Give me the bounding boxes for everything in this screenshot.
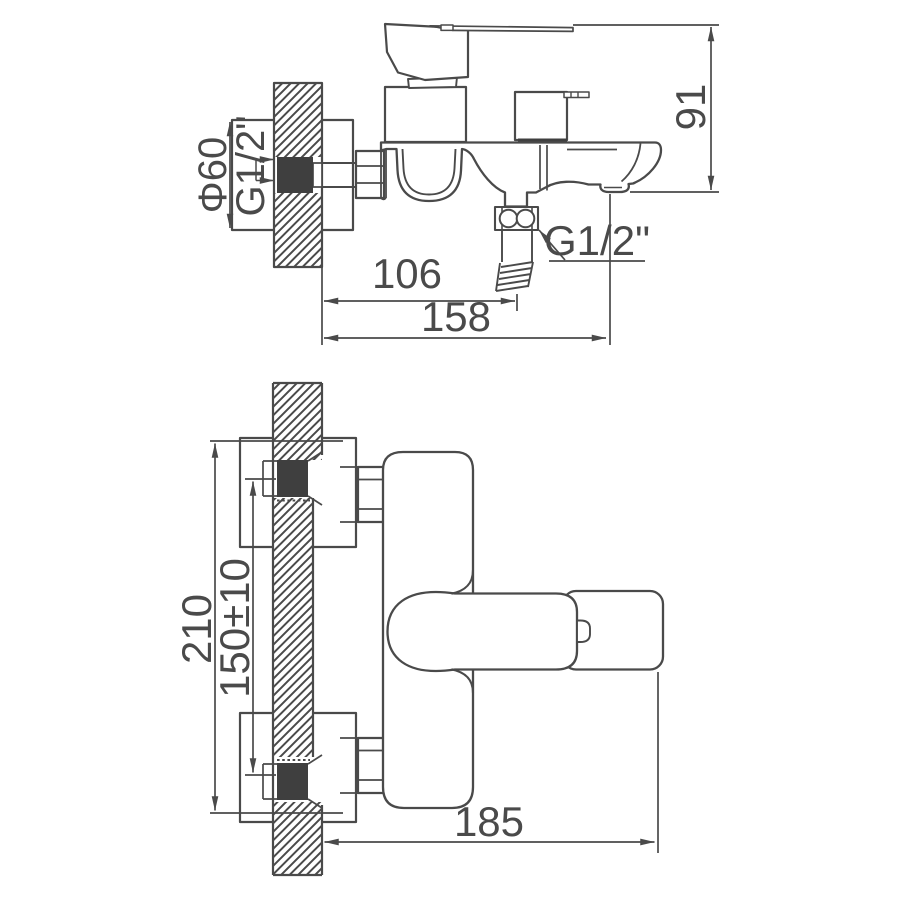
cartridge-housing <box>385 87 466 142</box>
dim-g12-inlet-label: G1/2" <box>229 116 273 217</box>
hex-nut-front-top <box>358 467 384 522</box>
technical-drawing-canvas: Φ60 G1/2" 91 106 158 G1/2" <box>0 0 900 900</box>
handle-grip-side <box>385 24 468 80</box>
side-view: Φ60 G1/2" 91 106 158 G1/2" <box>191 24 719 345</box>
inlet-fitting <box>277 157 313 193</box>
eccentric-fitting-bottom <box>277 763 308 800</box>
eccentric-fitting-top <box>277 460 308 497</box>
lever-notch <box>441 25 453 30</box>
wall-hatch-upper <box>274 83 322 157</box>
diverter-flag <box>564 92 589 98</box>
handle-lever-front <box>388 592 578 671</box>
hex-nut-side <box>356 151 384 198</box>
handle-tab <box>577 621 590 643</box>
dim-g12-shower-label: G1/2" <box>544 217 650 264</box>
wall-hatch-a <box>273 383 322 460</box>
dim-158-label: 158 <box>421 293 491 340</box>
hose-nut-circle-right <box>517 210 535 228</box>
fitting-step <box>313 163 322 187</box>
dim-91-label: 91 <box>667 84 714 131</box>
hex-nut-front-bottom <box>358 738 384 793</box>
dim-150-label: 150±10 <box>211 558 258 698</box>
wall-hatch-lower <box>274 193 322 267</box>
shower-hose-connection <box>495 207 538 291</box>
dim-106-label: 106 <box>372 250 442 297</box>
dim-185-label: 185 <box>454 798 524 845</box>
hose-stem <box>502 230 532 262</box>
hose-threads <box>496 262 533 291</box>
wall-hatch-b <box>273 498 313 757</box>
hose-nut-circle-left <box>500 210 518 228</box>
faucet-body-spout-side <box>381 143 661 207</box>
front-view: 210 150±10 185 <box>173 383 663 875</box>
diverter-knob <box>515 92 567 140</box>
technical-drawing-page: Φ60 G1/2" 91 106 158 G1/2" <box>0 0 900 900</box>
